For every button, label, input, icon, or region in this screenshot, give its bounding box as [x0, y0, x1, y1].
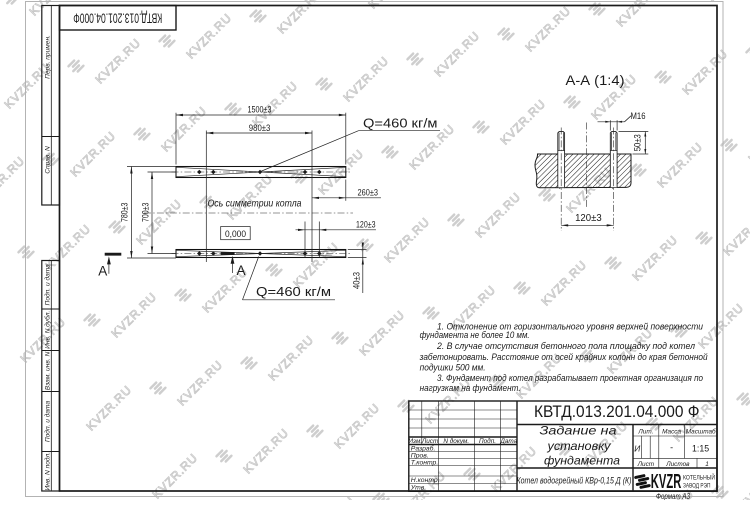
svg-text:780±3: 780±3 [119, 203, 130, 223]
svg-text:М16: М16 [631, 111, 646, 121]
svg-text:Дата: Дата [499, 438, 517, 445]
svg-text:Масса: Масса [662, 428, 681, 435]
svg-text:Q=460 кг/м: Q=460 кг/м [256, 284, 331, 299]
svg-text:260±3: 260±3 [358, 187, 379, 198]
svg-text:0,000: 0,000 [225, 228, 246, 239]
svg-text:120±3: 120±3 [575, 213, 602, 224]
svg-text:КОТЕЛЬНЫЙ: КОТЕЛЬНЫЙ [683, 474, 715, 482]
svg-text:Листов: Листов [665, 461, 690, 468]
svg-text:Пров.: Пров. [411, 452, 429, 459]
svg-text:1: 1 [705, 461, 709, 468]
svg-text:Подп.: Подп. [479, 437, 496, 445]
svg-text:Справ. N: Справ. N [45, 146, 52, 174]
svg-text:Лист: Лист [637, 461, 655, 468]
svg-text:фундамента: фундамента [544, 454, 620, 468]
svg-text:А: А [236, 263, 245, 278]
svg-text:Q=460 кг/м: Q=460 кг/м [363, 115, 438, 130]
svg-text:подушки 500 мм.: подушки 500 мм. [420, 363, 486, 373]
svg-text:Лист: Лист [421, 438, 439, 445]
svg-text:40±3: 40±3 [351, 272, 362, 289]
svg-text:Задание на: Задание на [540, 424, 617, 438]
svg-text:Лит.: Лит. [637, 428, 653, 435]
svg-text:Ось симметрии котла: Ось симметрии котла [208, 198, 302, 209]
svg-text:нагрузкам на фундамент.: нагрузкам на фундамент. [420, 383, 521, 393]
svg-text:Котел водогрейный КВр-0,15 Д (: Котел водогрейный КВр-0,15 Д (К) [517, 475, 632, 485]
svg-text:Инв. N подл.: Инв. N подл. [44, 452, 52, 491]
svg-text:700±3: 700±3 [139, 203, 150, 223]
svg-text:Разраб.: Разраб. [411, 444, 436, 452]
svg-text:А: А [98, 264, 107, 279]
svg-text:ЗАВОД РЭП: ЗАВОД РЭП [683, 484, 711, 490]
svg-text:N докум.: N докум. [443, 437, 469, 445]
svg-text:Перв. примен.: Перв. примен. [45, 35, 52, 79]
svg-text:-: - [670, 443, 673, 453]
svg-text:КВТД.013.201.04.000 Ф: КВТД.013.201.04.000 Ф [534, 402, 700, 421]
svg-text:980±3: 980±3 [249, 122, 271, 133]
svg-text:3. Фундамент под котел разраба: 3. Фундамент под котел разрабатывает про… [437, 373, 703, 383]
svg-text:КВТД.013.201.04.000Ф: КВТД.013.201.04.000Ф [73, 10, 162, 26]
svg-text:Т.контр.: Т.контр. [411, 459, 439, 466]
svg-text:Н.контр.: Н.контр. [411, 477, 440, 484]
svg-text:установку: установку [546, 439, 611, 453]
svg-text:120±3: 120±3 [356, 219, 376, 230]
svg-text:Инв. N дубл.: Инв. N дубл. [44, 311, 52, 349]
svg-text:KVZR: KVZR [651, 470, 682, 493]
svg-text:А-А (1:4): А-А (1:4) [566, 73, 625, 88]
svg-text:1500±3: 1500±3 [248, 104, 272, 115]
svg-text:Подп. и дата: Подп. и дата [44, 401, 52, 443]
svg-text:фундамента не более 10 мм.: фундамента не более 10 мм. [420, 330, 530, 340]
svg-text:50±3: 50±3 [633, 134, 643, 151]
svg-text:2. В случае отсутствия бетонно: 2. В случае отсутствия бетонного пола пл… [436, 341, 696, 351]
svg-text:Взам. инв. N: Взам. инв. N [45, 352, 52, 391]
svg-text:Подп. и дата: Подп. и дата [44, 264, 52, 306]
svg-text:Масштаб: Масштаб [686, 427, 716, 435]
svg-text:1:15: 1:15 [692, 444, 709, 454]
svg-text:И: И [634, 443, 640, 453]
svg-text:забетонировать. Расстояние от: забетонировать. Расстояние от осей крайн… [419, 352, 708, 362]
svg-text:Изм.: Изм. [408, 438, 422, 445]
svg-text:Формат А3: Формат А3 [656, 492, 690, 500]
svg-text:Утв.: Утв. [410, 485, 427, 492]
